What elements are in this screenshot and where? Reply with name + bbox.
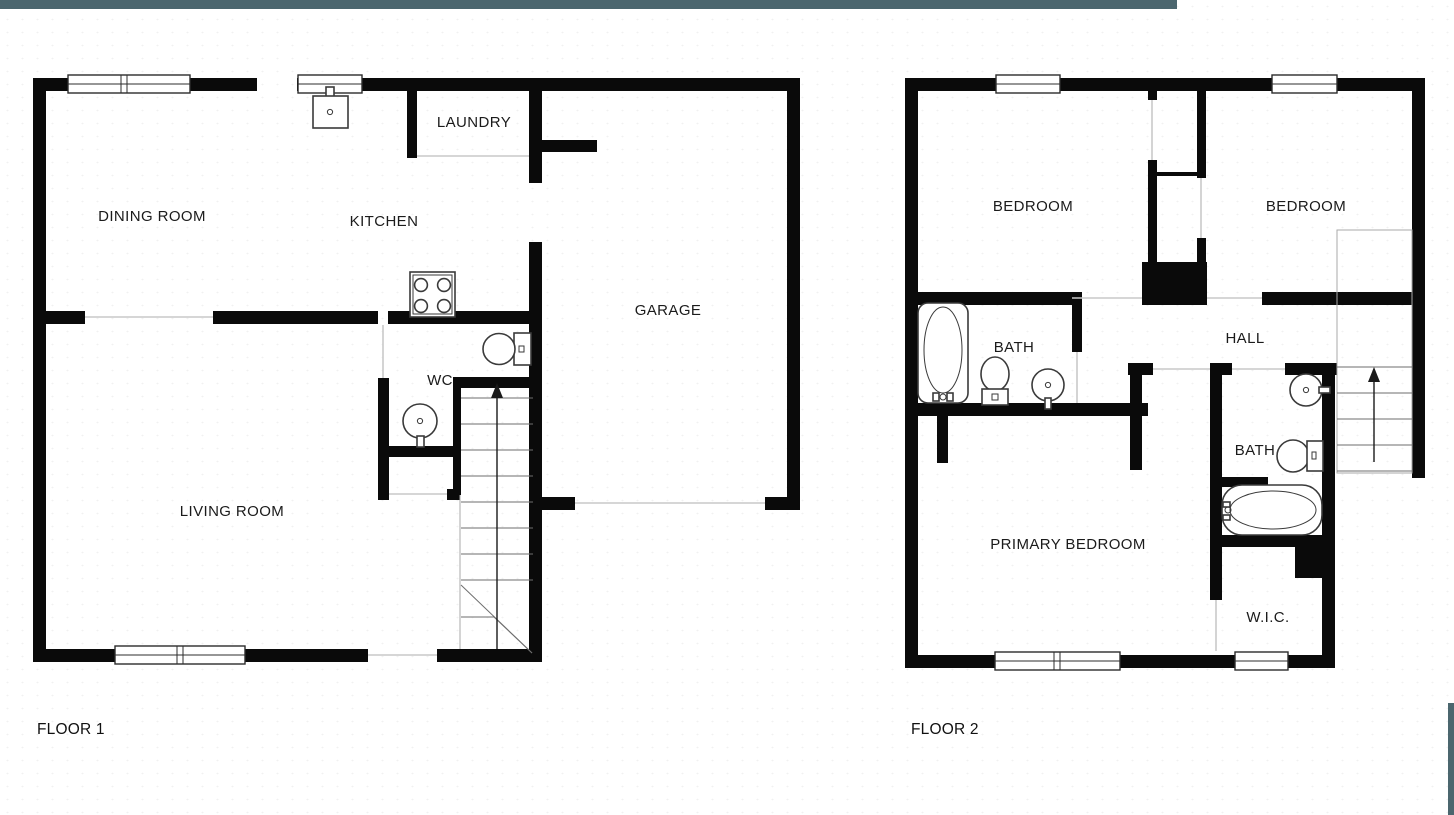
floor1-windows [68,75,362,664]
floor2-stairs [1337,230,1412,473]
room-label-bath-lower: BATH [1235,442,1276,459]
room-label-wc: WC [427,372,453,389]
floor1-walls [33,78,800,662]
room-label-wic: W.I.C. [1246,609,1289,626]
window-icon [995,652,1120,670]
toilet-icon [483,333,531,365]
right-accent-bar [1448,703,1454,815]
stairs-up-arrow-icon [1368,367,1380,462]
room-label-dining: DINING ROOM [98,208,206,225]
room-label-bedroom-right: BEDROOM [1266,198,1346,215]
room-label-laundry: LAUNDRY [437,114,511,131]
floor2-plan: BEDROOM BEDROOM BATH HALL BATH PRIMARY B… [905,75,1425,738]
room-label-bedroom-left: BEDROOM [993,198,1073,215]
room-label-bath-upper: BATH [994,339,1035,356]
floor1-stairs [460,383,533,653]
floor1-plan: DINING ROOM KITCHEN LAUNDRY GARAGE WC LI… [33,75,800,738]
room-label-primary: PRIMARY BEDROOM [990,536,1145,553]
round-sink-icon [403,404,437,447]
bathtub-icon [918,303,968,403]
room-label-garage: GARAGE [635,302,702,319]
stove-icon [410,272,455,317]
top-accent-bar [0,0,1177,9]
room-label-hall: HALL [1225,330,1264,347]
toilet-icon [981,357,1009,405]
window-icon [68,75,190,93]
window-icon [1272,75,1337,93]
window-icon [996,75,1060,93]
floorplan-drawing: DINING ROOM KITCHEN LAUNDRY GARAGE WC LI… [0,0,1454,815]
floor2-door-openings [1072,100,1285,651]
toilet-icon [1277,440,1323,472]
floor1-caption: FLOOR 1 [37,721,105,738]
room-label-living: LIVING ROOM [180,503,284,520]
room-label-kitchen: KITCHEN [350,213,419,230]
bathtub-icon [1222,485,1322,535]
floorplan-page: DINING ROOM KITCHEN LAUNDRY GARAGE WC LI… [0,0,1454,815]
window-icon [115,646,245,664]
window-icon [1235,652,1288,670]
floor2-caption: FLOOR 2 [911,721,979,738]
stairs-up-arrow-icon [491,383,503,649]
